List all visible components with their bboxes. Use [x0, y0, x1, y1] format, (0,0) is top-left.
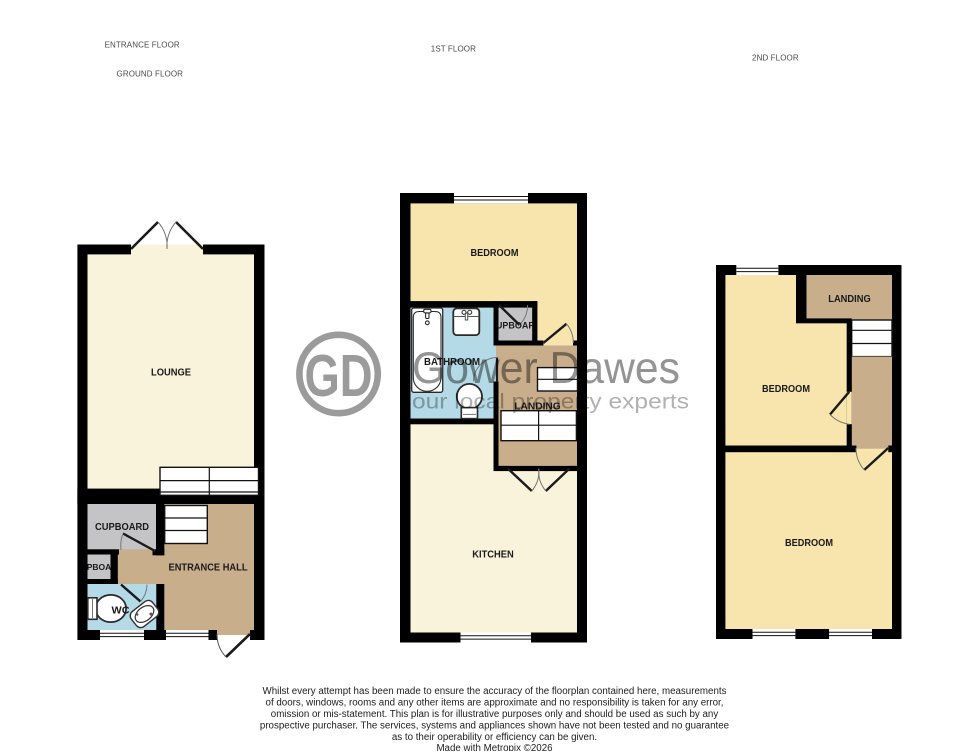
- svg-text:KITCHEN: KITCHEN: [472, 549, 514, 561]
- svg-text:BEDROOM: BEDROOM: [785, 537, 833, 549]
- svg-text:as to their operability or eff: as to their operability or efficiency ca…: [392, 732, 597, 743]
- svg-text:BEDROOM: BEDROOM: [762, 383, 810, 395]
- svg-text:GD: GD: [305, 343, 373, 409]
- svg-text:2ND FLOOR: 2ND FLOOR: [752, 54, 799, 63]
- svg-text:ENTRANCE HALL: ENTRANCE HALL: [169, 562, 249, 574]
- svg-text:Whilst every attempt has been: Whilst every attempt has been made to en…: [263, 686, 727, 697]
- svg-text:our local property experts: our local property experts: [412, 390, 689, 414]
- svg-text:GROUND FLOOR: GROUND FLOOR: [117, 70, 184, 79]
- svg-text:1ST FLOOR: 1ST FLOOR: [431, 45, 476, 54]
- svg-text:omission or mis-statement. Thi: omission or mis-statement. This plan is …: [271, 709, 719, 720]
- svg-text:ENTRANCE FLOOR: ENTRANCE FLOOR: [105, 41, 180, 50]
- svg-text:WC: WC: [112, 605, 130, 617]
- svg-text:LANDING: LANDING: [828, 294, 871, 305]
- svg-text:of doors, windows, rooms and a: of doors, windows, rooms and any other i…: [266, 698, 724, 709]
- svg-text:prospective purchaser. The ser: prospective purchaser. The services, sys…: [260, 721, 729, 732]
- svg-text:BEDROOM: BEDROOM: [471, 247, 519, 259]
- svg-text:Gower Dawes: Gower Dawes: [412, 344, 680, 393]
- svg-text:CUPBOARD: CUPBOARD: [95, 521, 149, 533]
- svg-text:Made with Metropix ©2026: Made with Metropix ©2026: [436, 743, 552, 751]
- svg-text:LOUNGE: LOUNGE: [151, 367, 191, 379]
